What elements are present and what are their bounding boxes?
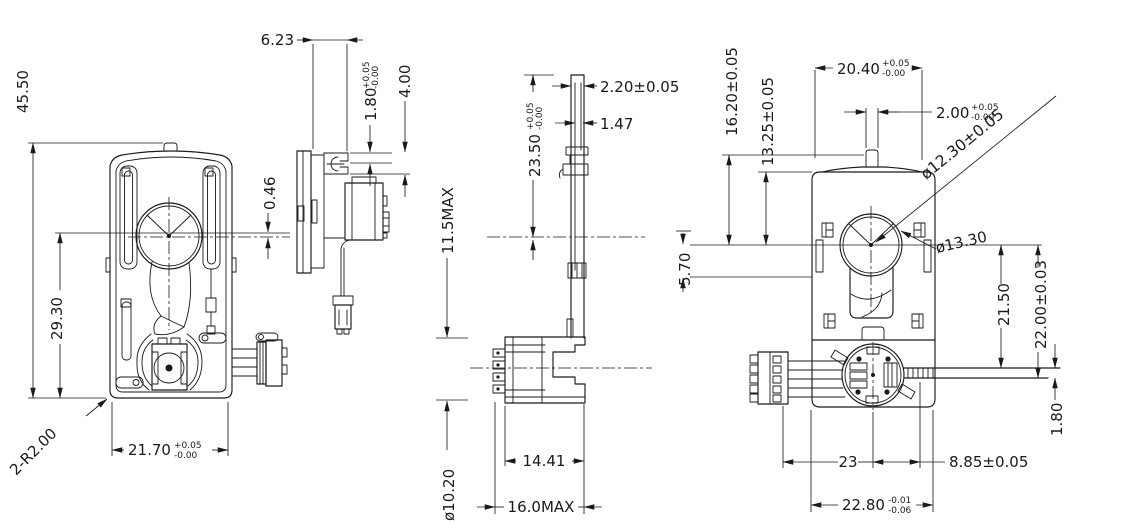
- dim-side-flange-to-clip: 6.23: [261, 31, 294, 49]
- dim-rear-motor-center-offset: 23: [838, 453, 857, 471]
- dim-profile-lever-thickness: 1.47: [600, 115, 633, 133]
- dim-rear-shaft-width: 2.00: [936, 104, 969, 122]
- dim-front-body-width: 21.70: [128, 441, 171, 459]
- dim-profile-overall-depth: 16.0MAX: [508, 498, 575, 516]
- front-body-outline: [110, 151, 232, 398]
- dim-profile-motor-diameter: ø10.20: [440, 469, 458, 521]
- dim-front-body-width-tol-lower: -0.00: [174, 451, 198, 461]
- engineering-drawing-canvas: 45.50 29.30 2-R2.00 21.70 +0.05 -0.00 0.…: [0, 0, 1144, 531]
- rear-connector: [750, 352, 845, 404]
- side-view: [297, 151, 389, 334]
- dim-rear-body-width-tol-upper: -0.01: [888, 496, 911, 506]
- front-lower-slot: [122, 302, 131, 360]
- rear-shaft-tab: [866, 150, 878, 167]
- dim-rear-boss-diameter: ø13.30: [934, 228, 989, 257]
- dim-profile-lever-tip-width: 2.20±0.05: [600, 78, 679, 96]
- dim-front-corner-radius: 2-R2.00: [6, 425, 60, 479]
- side-clip: [324, 153, 348, 174]
- dim-rear-body-width: 22.80: [842, 496, 885, 514]
- dim-rear-arm-thickness: 1.80: [1048, 403, 1066, 436]
- dim-side-clip-slot: 1.80: [362, 88, 380, 121]
- front-top-tab: [164, 143, 177, 151]
- dim-rear-body-width-tol-lower: -0.06: [888, 506, 912, 516]
- dim-side-clip-depth: 4.00: [396, 65, 414, 98]
- dim-rear-shoulder-height: 16.20±0.05: [723, 47, 741, 136]
- front-cam-blob: [150, 262, 191, 335]
- dim-profile-gearbox-depth: 14.41: [523, 452, 566, 470]
- side-motor-block: [324, 177, 389, 240]
- front-connector: [232, 333, 287, 386]
- front-mid-latch: [199, 333, 226, 343]
- front-view-dimensions: 45.50 29.30 2-R2.00 21.70 +0.05 -0.00 0.…: [6, 70, 279, 479]
- rear-center-tab: [862, 327, 884, 340]
- dim-rear-arm-bottom-offset: 22.00±0.03: [1032, 260, 1050, 349]
- dim-profile-lever-length: 23.50: [526, 134, 544, 177]
- rear-lever-arm: [903, 368, 1060, 378]
- dim-rear-shoulder-width-tol-lower: -0.00: [882, 69, 906, 79]
- dim-rear-shoulder-width: 20.40: [837, 60, 880, 78]
- dim-side-clip-slot-tol-lower: -0.00: [371, 65, 381, 89]
- dim-rear-shoulder-width-tol-upper: +0.05: [882, 59, 910, 69]
- dim-front-body-width-tol-upper: +0.05: [174, 441, 202, 451]
- dim-profile-gearbox-height: 11.5MAX: [439, 187, 457, 254]
- front-right-slot: [203, 166, 220, 269]
- motor-actuator-drawing: 45.50 29.30 2-R2.00 21.70 +0.05 -0.00 0.…: [0, 0, 1144, 531]
- front-view: [55, 143, 290, 398]
- dim-rear-arm-start-offset: 8.85±0.05: [949, 453, 1028, 471]
- front-left-slot: [120, 166, 137, 269]
- rear-body-outline: [812, 172, 935, 407]
- dim-front-center-offset: 0.46: [261, 177, 279, 210]
- side-view-dimensions: 6.23 1.80 +0.05 -0.00 4.00: [261, 31, 414, 197]
- dim-rear-flange-height: 13.25±0.05: [759, 77, 777, 166]
- dim-front-overall-height: 45.50: [14, 70, 32, 113]
- profile-boss: [566, 147, 588, 155]
- front-left-notch: [106, 258, 110, 272]
- dim-profile-lever-length-tol-lower: -0.00: [535, 106, 545, 130]
- dim-front-center-to-bottom: 29.30: [48, 297, 66, 340]
- front-motor: [137, 334, 202, 390]
- front-right-notch: [232, 258, 236, 272]
- side-wire-plug: [333, 240, 353, 334]
- rear-top-arc: [822, 167, 922, 172]
- rear-view: [690, 150, 1060, 410]
- profile-view-dimensions: 2.20±0.05 1.47 23.50 +0.05 -0.00 11.5MAX…: [436, 75, 679, 521]
- dim-rear-arm-top-offset: 21.50: [995, 283, 1013, 326]
- dim-rear-step-height: 5.70: [676, 253, 694, 286]
